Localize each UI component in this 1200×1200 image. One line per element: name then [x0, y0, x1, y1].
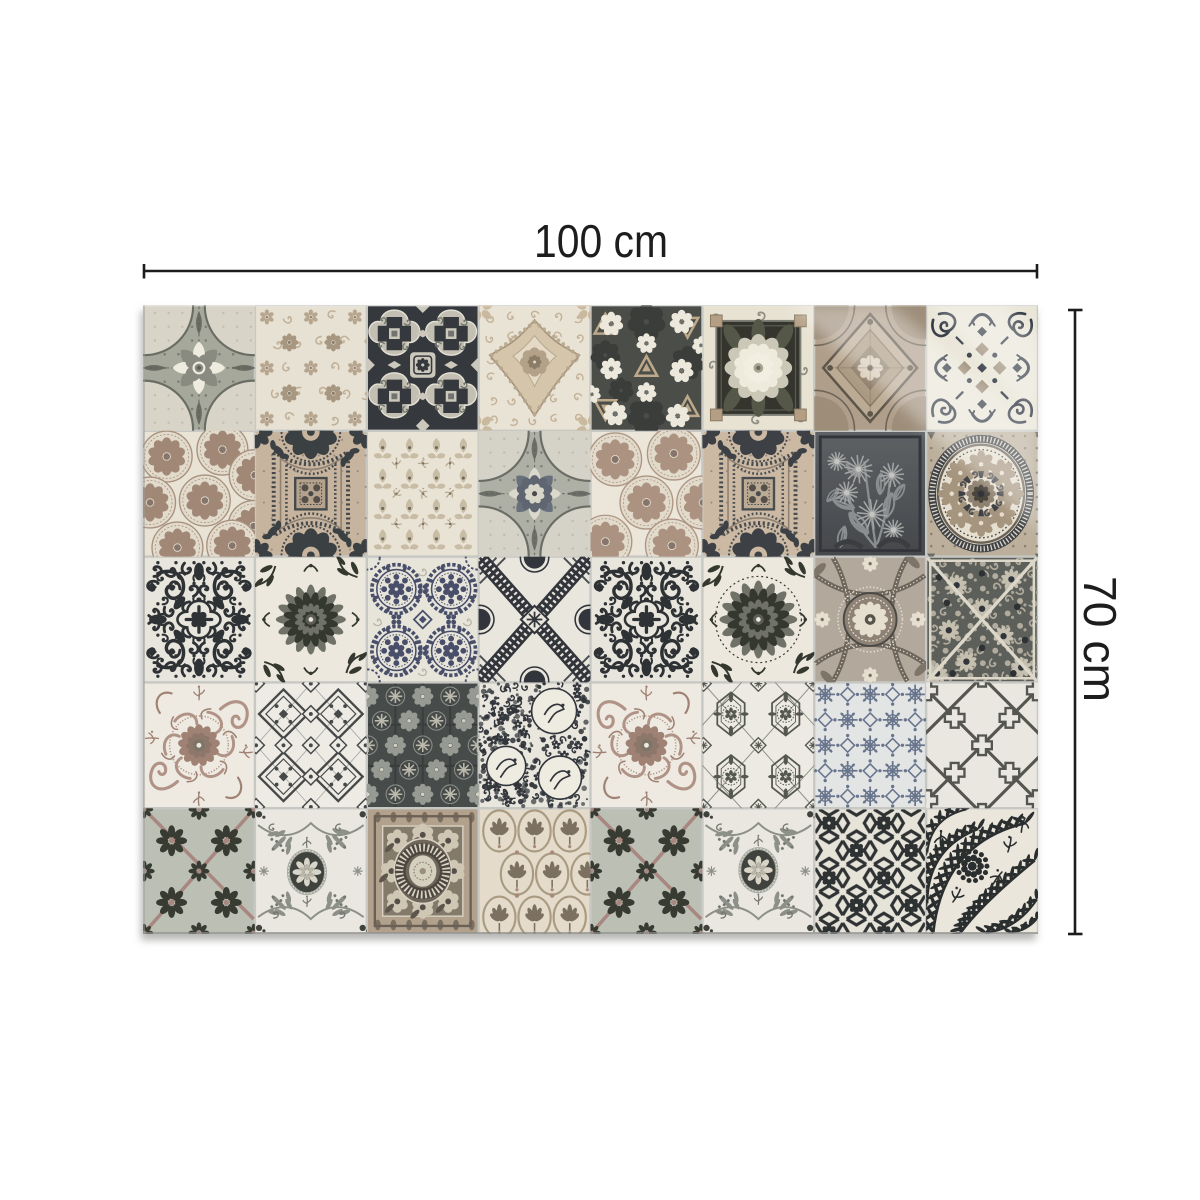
- svg-text:100 cm: 100 cm: [534, 215, 668, 267]
- svg-text:70 cm: 70 cm: [1074, 576, 1126, 702]
